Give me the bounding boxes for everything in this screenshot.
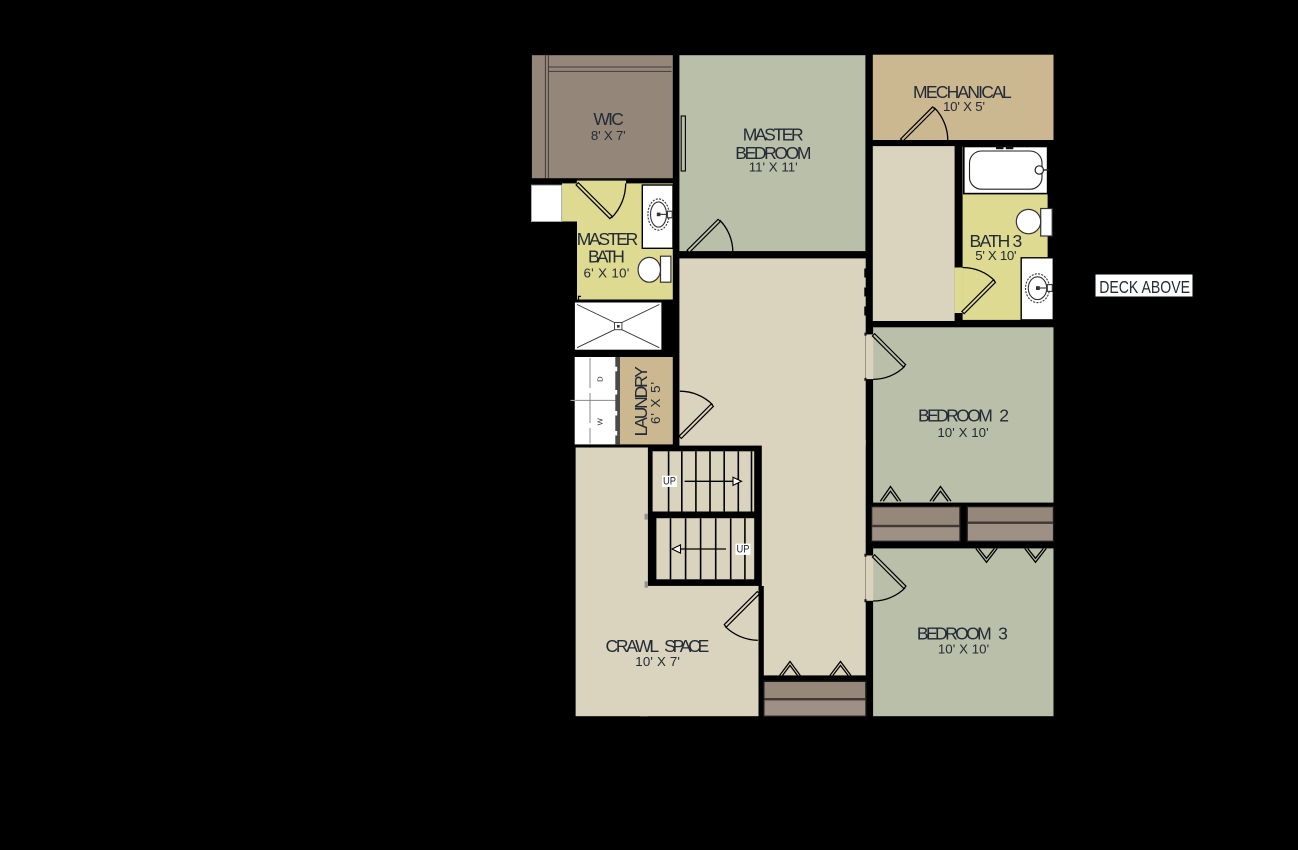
svg-text:UP: UP [663, 475, 676, 487]
svg-text:10' X 7': 10' X 7' [635, 654, 680, 669]
svg-text:BEDROOM: BEDROOM [918, 406, 993, 426]
svg-text:6' X 10': 6' X 10' [583, 265, 629, 280]
svg-text:WIC: WIC [593, 109, 624, 129]
svg-text:10' X 10': 10' X 10' [937, 425, 988, 440]
svg-text:6' X 5': 6' X 5' [648, 382, 663, 424]
svg-text:2: 2 [999, 406, 1009, 426]
svg-text:10' X 10': 10' X 10' [938, 641, 989, 656]
svg-text:10' X 5': 10' X 5' [943, 99, 985, 114]
svg-text:D: D [595, 376, 604, 382]
svg-text:3: 3 [998, 624, 1008, 644]
svg-text:8' X 7': 8' X 7' [591, 128, 626, 143]
svg-text:UP: UP [737, 544, 750, 556]
svg-text:11' X 11': 11' X 11' [749, 160, 798, 175]
svg-text:BATH: BATH [588, 247, 625, 267]
svg-text:5' X 10': 5' X 10' [975, 248, 1016, 263]
svg-text:MASTER: MASTER [743, 125, 804, 145]
svg-text:W: W [595, 417, 604, 425]
svg-text:CRAWL: CRAWL [606, 636, 660, 656]
svg-text:SPACE: SPACE [664, 636, 709, 656]
svg-text:DECK ABOVE: DECK ABOVE [1099, 277, 1190, 297]
